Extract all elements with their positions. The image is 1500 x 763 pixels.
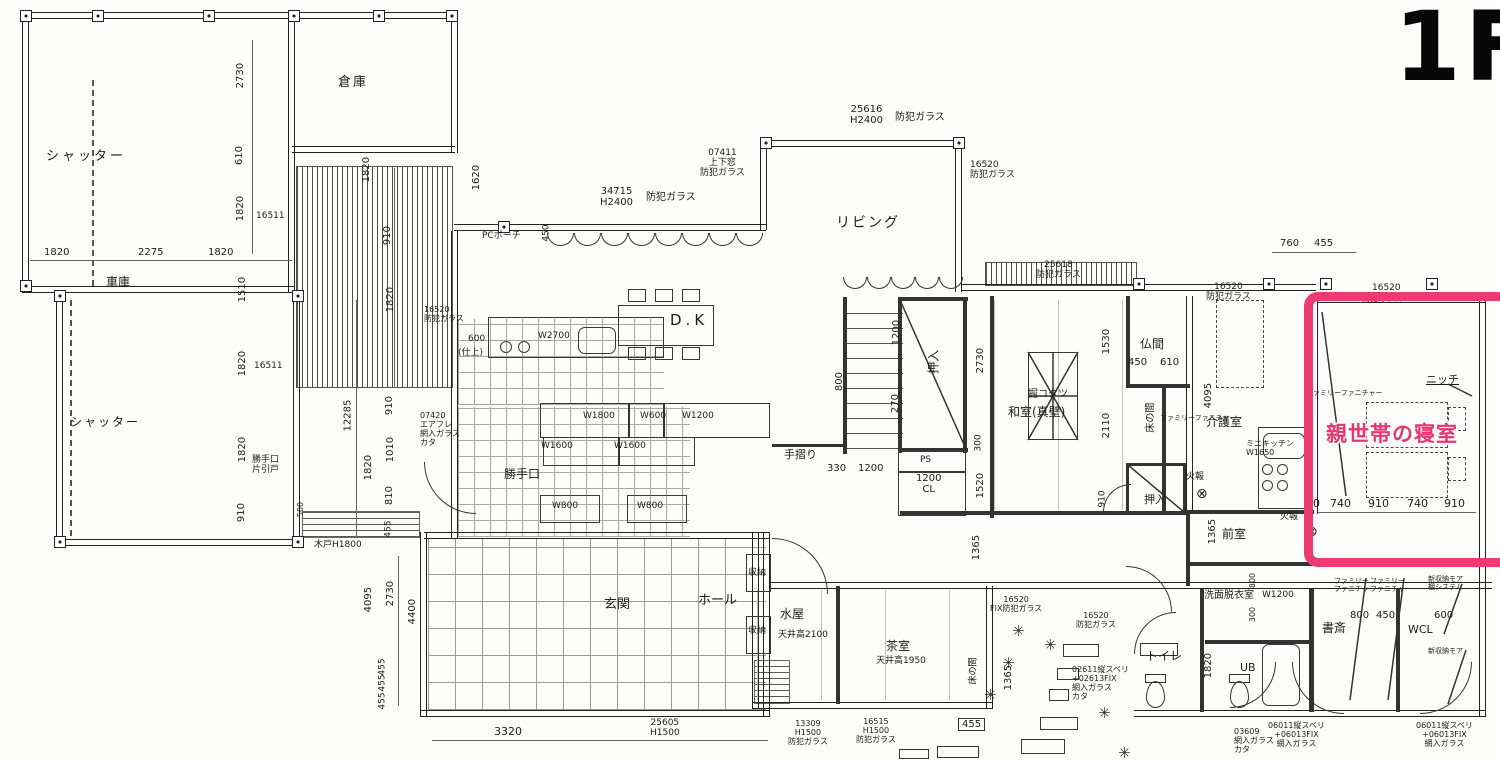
room-label-entrance: 玄関: [604, 598, 630, 613]
room-label-living: リビング: [836, 216, 900, 232]
label-side-door: 勝手口 片引戸: [252, 455, 279, 475]
dim-label: 760: [1280, 238, 1299, 249]
label-fire-alarm: 火報: [1186, 472, 1204, 482]
dim-label: 2730: [235, 63, 246, 88]
dim-label: 1820: [235, 196, 246, 221]
dim-label: 1820: [208, 247, 233, 258]
dim-label: W1600: [541, 441, 573, 451]
label-storage-system: 新収納モア 棚システム: [1428, 576, 1463, 592]
room-label-shutter-upper: シャッター: [46, 150, 126, 165]
window-label: 防犯ガラス: [646, 192, 696, 203]
dim-label: 610: [234, 146, 245, 165]
dim-label: 1365: [971, 535, 982, 560]
floor-plan-canvas: シャッター倉庫2730610182016511182022751820車庫151…: [0, 0, 1500, 763]
dim-label: 1365: [1003, 665, 1014, 690]
dim-label: 910: [236, 503, 247, 522]
dim-label: 455: [378, 674, 388, 691]
window-label: 25605 H1500: [650, 718, 680, 738]
label-cl: 1200 CL: [916, 473, 941, 495]
label-handrail: 手摺り: [784, 449, 817, 461]
dim-label: 16511: [254, 361, 283, 371]
dim-label: 910: [384, 396, 395, 415]
dim-label: 2730: [385, 581, 396, 606]
label-family-furniture: ファミリー ファニチャー: [1370, 578, 1412, 594]
window-label: 02611縦スベリ +02613FIX 網入ガラス カタ: [1072, 666, 1129, 702]
room-label-toilet: トイレ: [1146, 650, 1182, 663]
dim-label: 1820: [237, 437, 248, 462]
room-label-closet-2: 押入: [1144, 494, 1166, 506]
dim-label: 1510: [237, 277, 248, 302]
dim-label: 455: [958, 718, 985, 731]
dim-label: 910: [1098, 490, 1108, 507]
dim-label: 800: [1249, 573, 1258, 588]
room-label-washroom: 洗面脱衣室: [1204, 590, 1254, 601]
label-fire-alarm: 火報: [1280, 512, 1298, 522]
label-pc-porch: PCポーチ: [482, 231, 521, 241]
window-label: 25616 H2400: [850, 104, 883, 126]
window-label: 16520 防犯ガラス: [1076, 612, 1116, 630]
dim-label: 810: [384, 486, 395, 505]
dim-label: W2700: [538, 331, 570, 341]
dim-label: 1820: [361, 157, 372, 182]
room-label-storage: 倉庫: [338, 76, 368, 91]
window-label: 16520 防犯ガラス: [1206, 282, 1251, 302]
room-label-washitsu: 和室(真壁): [1008, 406, 1065, 419]
room-label-care-room: 介護室: [1206, 416, 1242, 429]
label-storage: 収納: [748, 626, 766, 636]
dim-label: 600: [1434, 610, 1453, 621]
dim-label: (仕上): [458, 348, 483, 358]
window-label: 06011縦スベリ +06013FIX 網入ガラス: [1416, 722, 1473, 749]
dim-label: W600: [640, 411, 666, 421]
room-label-study: 書斎: [1322, 622, 1346, 635]
label-ceiling-height: 天井高1950: [876, 656, 926, 666]
dim-label: 455: [1314, 238, 1333, 249]
window-label: 07420 エアフレ 網入ガラス カタ: [420, 412, 460, 448]
room-label-dk: D.K: [670, 312, 708, 329]
dim-label: 4095: [1203, 383, 1214, 408]
label-ceiling-height: 天井高2100: [778, 630, 828, 640]
dim-label: 300: [1249, 607, 1258, 622]
room-label-tokonoma-2: 床の間: [968, 658, 978, 685]
dim-label: W1200: [1262, 590, 1294, 600]
label-storage: 収納: [748, 568, 766, 578]
highlight-room-label: 親世帯の寝室: [1326, 418, 1458, 448]
dim-label: 1620: [471, 165, 482, 190]
window-label: 16515 H1500 防犯ガラス: [856, 718, 896, 745]
window-label: 防犯ガラス: [895, 112, 945, 123]
dim-label: 600: [468, 334, 485, 344]
label-ps: PS: [920, 455, 931, 465]
dim-label: 455: [378, 692, 388, 709]
dim-label: W800: [552, 501, 578, 511]
dim-label: 1365: [1207, 519, 1218, 544]
dim-label: 270: [890, 394, 901, 413]
window-label: 16520 FIX防犯ガラス: [990, 596, 1042, 614]
dim-label: 450: [1376, 610, 1395, 621]
dim-label: 1820: [363, 455, 374, 480]
dim-label: 1820: [237, 351, 248, 376]
dim-label: 610: [1160, 357, 1179, 368]
room-label-mizuya: 水屋: [780, 608, 804, 621]
dim-label: 12285: [342, 400, 353, 432]
room-label-garage: 車庫: [106, 276, 130, 289]
window-label: 13309 H1500 防犯ガラス: [788, 720, 828, 747]
room-label-kitchen-door: 勝手口: [504, 468, 540, 481]
window-label: 07411 上下窓 防犯ガラス: [700, 148, 745, 178]
dim-label: 2275: [138, 247, 163, 258]
window-label: 16520 防犯ガラス: [970, 160, 1015, 180]
dim-label: 910: [382, 226, 393, 245]
room-label-closet-1: 押入: [927, 350, 940, 374]
dim-label: 4400: [407, 599, 418, 624]
dim-label: 800: [1350, 610, 1369, 621]
dim-label: 1200: [858, 463, 883, 474]
dim-label: 1200: [891, 320, 902, 345]
room-label-tea-room: 茶室: [886, 640, 910, 653]
dim-label: 1820: [1203, 653, 1214, 678]
room-label-butsuma: 仏間: [1140, 338, 1164, 351]
room-label-wcl: WCL: [1408, 624, 1433, 636]
diagonal-lines-overlay: [0, 0, 1500, 763]
label-wood-gate: 木戸H1800: [314, 540, 362, 550]
room-label-tokonoma-1: 床の間: [1145, 403, 1156, 433]
dim-label: 1010: [385, 437, 396, 462]
dim-label: 4095: [363, 587, 374, 612]
dim-label: W800: [637, 501, 663, 511]
dim-label: 2730: [975, 348, 986, 373]
dim-label: 3320: [494, 726, 522, 738]
window-label: 25618 防犯ガラス: [1036, 260, 1081, 280]
dim-label: 800: [834, 372, 845, 391]
label-storage-system: 新収納モア: [1428, 648, 1463, 656]
dim-label: 1520: [975, 473, 986, 498]
window-label: 34715 H2400: [600, 186, 633, 208]
window-label: 16520 防犯ガラス: [424, 306, 464, 324]
label-mini-kitchen: ミニキッチン W1650: [1246, 440, 1294, 458]
dim-label: 16511: [256, 211, 285, 221]
label-kotatsu: 掘コタツ: [1028, 389, 1068, 400]
floor-tag: 1F: [1394, 2, 1500, 93]
window-label: 06011縦スベリ +06013FIX 網入ガラス: [1268, 722, 1325, 749]
dim-label: 1530: [1101, 329, 1112, 354]
dim-label: W1800: [583, 411, 615, 421]
dim-label: 330: [827, 463, 846, 474]
dim-label: 500: [297, 502, 306, 517]
room-label-hall: ホール: [698, 594, 737, 609]
dim-label: 300: [974, 434, 984, 451]
room-label-ub: UB: [1240, 662, 1256, 674]
dim-label: 455: [384, 520, 394, 537]
room-label-anteroom: 前室: [1222, 528, 1246, 541]
dim-label: W1200: [682, 411, 714, 421]
dim-label: 450: [542, 224, 552, 241]
dim-label: 455: [378, 658, 388, 675]
dim-label: 1820: [385, 287, 396, 312]
room-label-shutter-lower: シャッター: [70, 416, 140, 429]
dim-label: W1600: [614, 441, 646, 451]
dim-label: 1820: [44, 247, 69, 258]
dim-label: 450: [1128, 357, 1147, 368]
dim-label: 2110: [1101, 413, 1112, 438]
